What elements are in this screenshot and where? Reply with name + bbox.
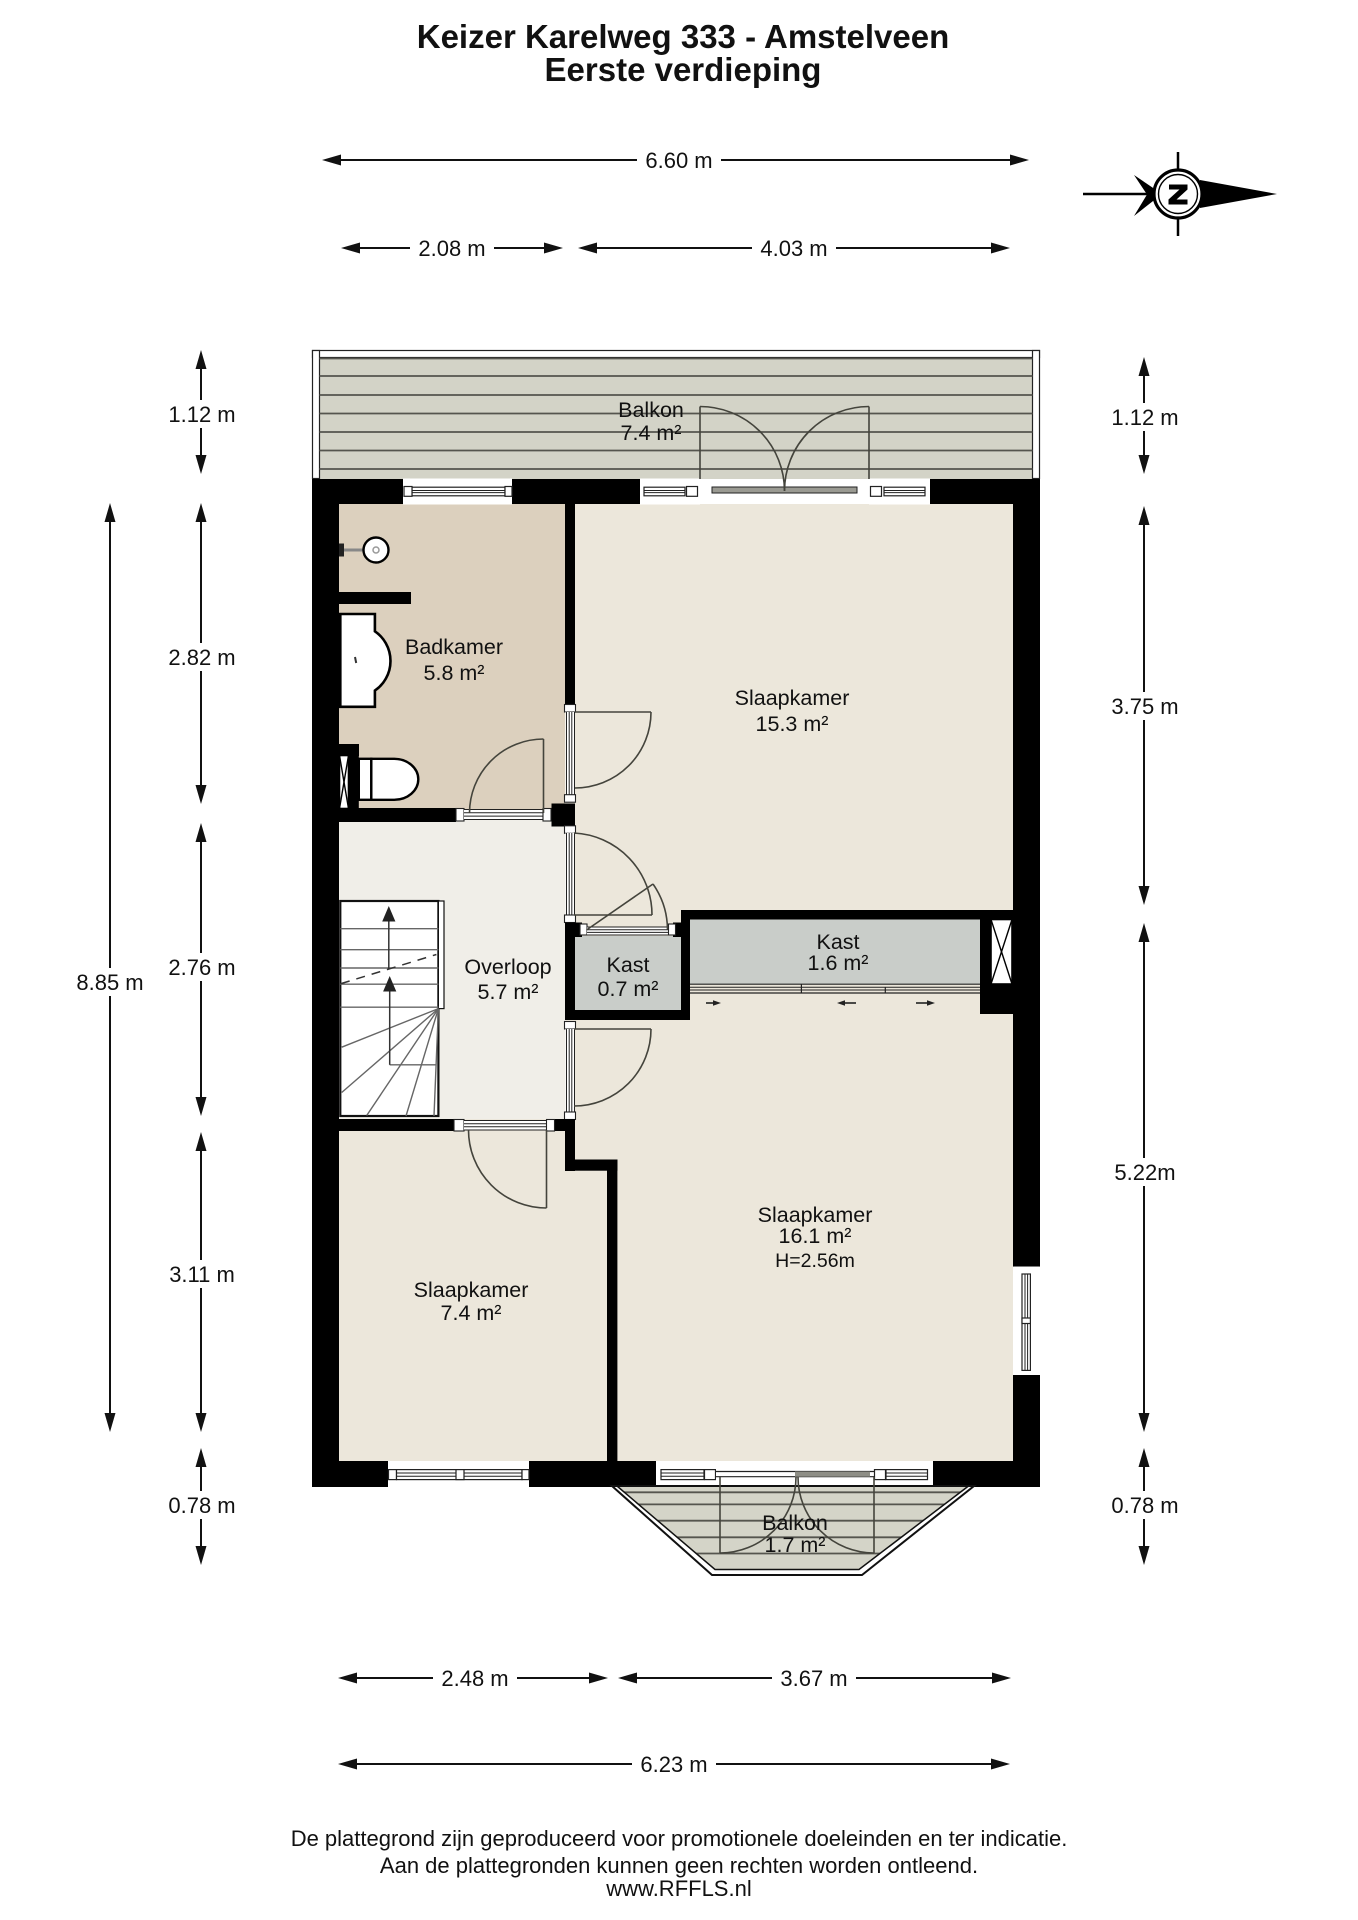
svg-text:6.23 m: 6.23 m bbox=[640, 1752, 707, 1777]
svg-text:H=2.56m: H=2.56m bbox=[775, 1250, 855, 1272]
svg-text:7.4 m²: 7.4 m² bbox=[621, 421, 682, 445]
svg-text:0.78 m: 0.78 m bbox=[168, 1493, 235, 1518]
svg-text:5.7 m²: 5.7 m² bbox=[478, 980, 539, 1004]
svg-text:3.67 m: 3.67 m bbox=[780, 1666, 847, 1691]
svg-text:Slaapkamer: Slaapkamer bbox=[414, 1278, 529, 1302]
svg-text:www.RFFLS.nl: www.RFFLS.nl bbox=[605, 1876, 751, 1901]
svg-text:7.4 m²: 7.4 m² bbox=[441, 1301, 502, 1325]
svg-text:2.48 m: 2.48 m bbox=[441, 1666, 508, 1691]
svg-text:Eerste verdieping: Eerste verdieping bbox=[545, 51, 822, 88]
svg-text:5.8 m²: 5.8 m² bbox=[424, 661, 485, 685]
svg-text:Aan de plattegronden kunnen ge: Aan de plattegronden kunnen geen rechten… bbox=[380, 1853, 978, 1878]
svg-text:2.08 m: 2.08 m bbox=[418, 236, 485, 261]
svg-text:0.7 m²: 0.7 m² bbox=[598, 977, 659, 1001]
svg-text:Badkamer: Badkamer bbox=[405, 635, 503, 659]
svg-text:3.11 m: 3.11 m bbox=[169, 1262, 235, 1287]
svg-text:2.76 m: 2.76 m bbox=[168, 955, 235, 980]
svg-text:1.12 m: 1.12 m bbox=[1111, 405, 1178, 430]
svg-text:16.1 m²: 16.1 m² bbox=[779, 1224, 852, 1248]
svg-text:Keizer Karelweg 333 - Amstelve: Keizer Karelweg 333 - Amstelveen bbox=[417, 18, 950, 55]
svg-text:6.60 m: 6.60 m bbox=[645, 148, 712, 173]
svg-text:Balkon: Balkon bbox=[618, 398, 684, 422]
svg-text:1.7 m²: 1.7 m² bbox=[765, 1533, 826, 1557]
svg-text:3.75 m: 3.75 m bbox=[1111, 694, 1178, 719]
svg-text:1.6 m²: 1.6 m² bbox=[808, 951, 869, 975]
svg-text:Kast: Kast bbox=[606, 953, 649, 977]
svg-text:De plattegrond zijn geproducee: De plattegrond zijn geproduceerd voor pr… bbox=[291, 1826, 1068, 1851]
svg-text:5.22m: 5.22m bbox=[1114, 1160, 1175, 1185]
svg-text:2.82 m: 2.82 m bbox=[168, 645, 235, 670]
svg-text:Balkon: Balkon bbox=[762, 1511, 828, 1535]
svg-text:Slaapkamer: Slaapkamer bbox=[735, 686, 850, 710]
svg-text:4.03 m: 4.03 m bbox=[760, 236, 827, 261]
svg-text:0.78 m: 0.78 m bbox=[1111, 1493, 1178, 1518]
svg-text:15.3 m²: 15.3 m² bbox=[756, 712, 829, 736]
svg-text:1.12 m: 1.12 m bbox=[168, 402, 235, 427]
svg-text:Overloop: Overloop bbox=[464, 955, 551, 979]
svg-text:8.85 m: 8.85 m bbox=[76, 970, 143, 995]
